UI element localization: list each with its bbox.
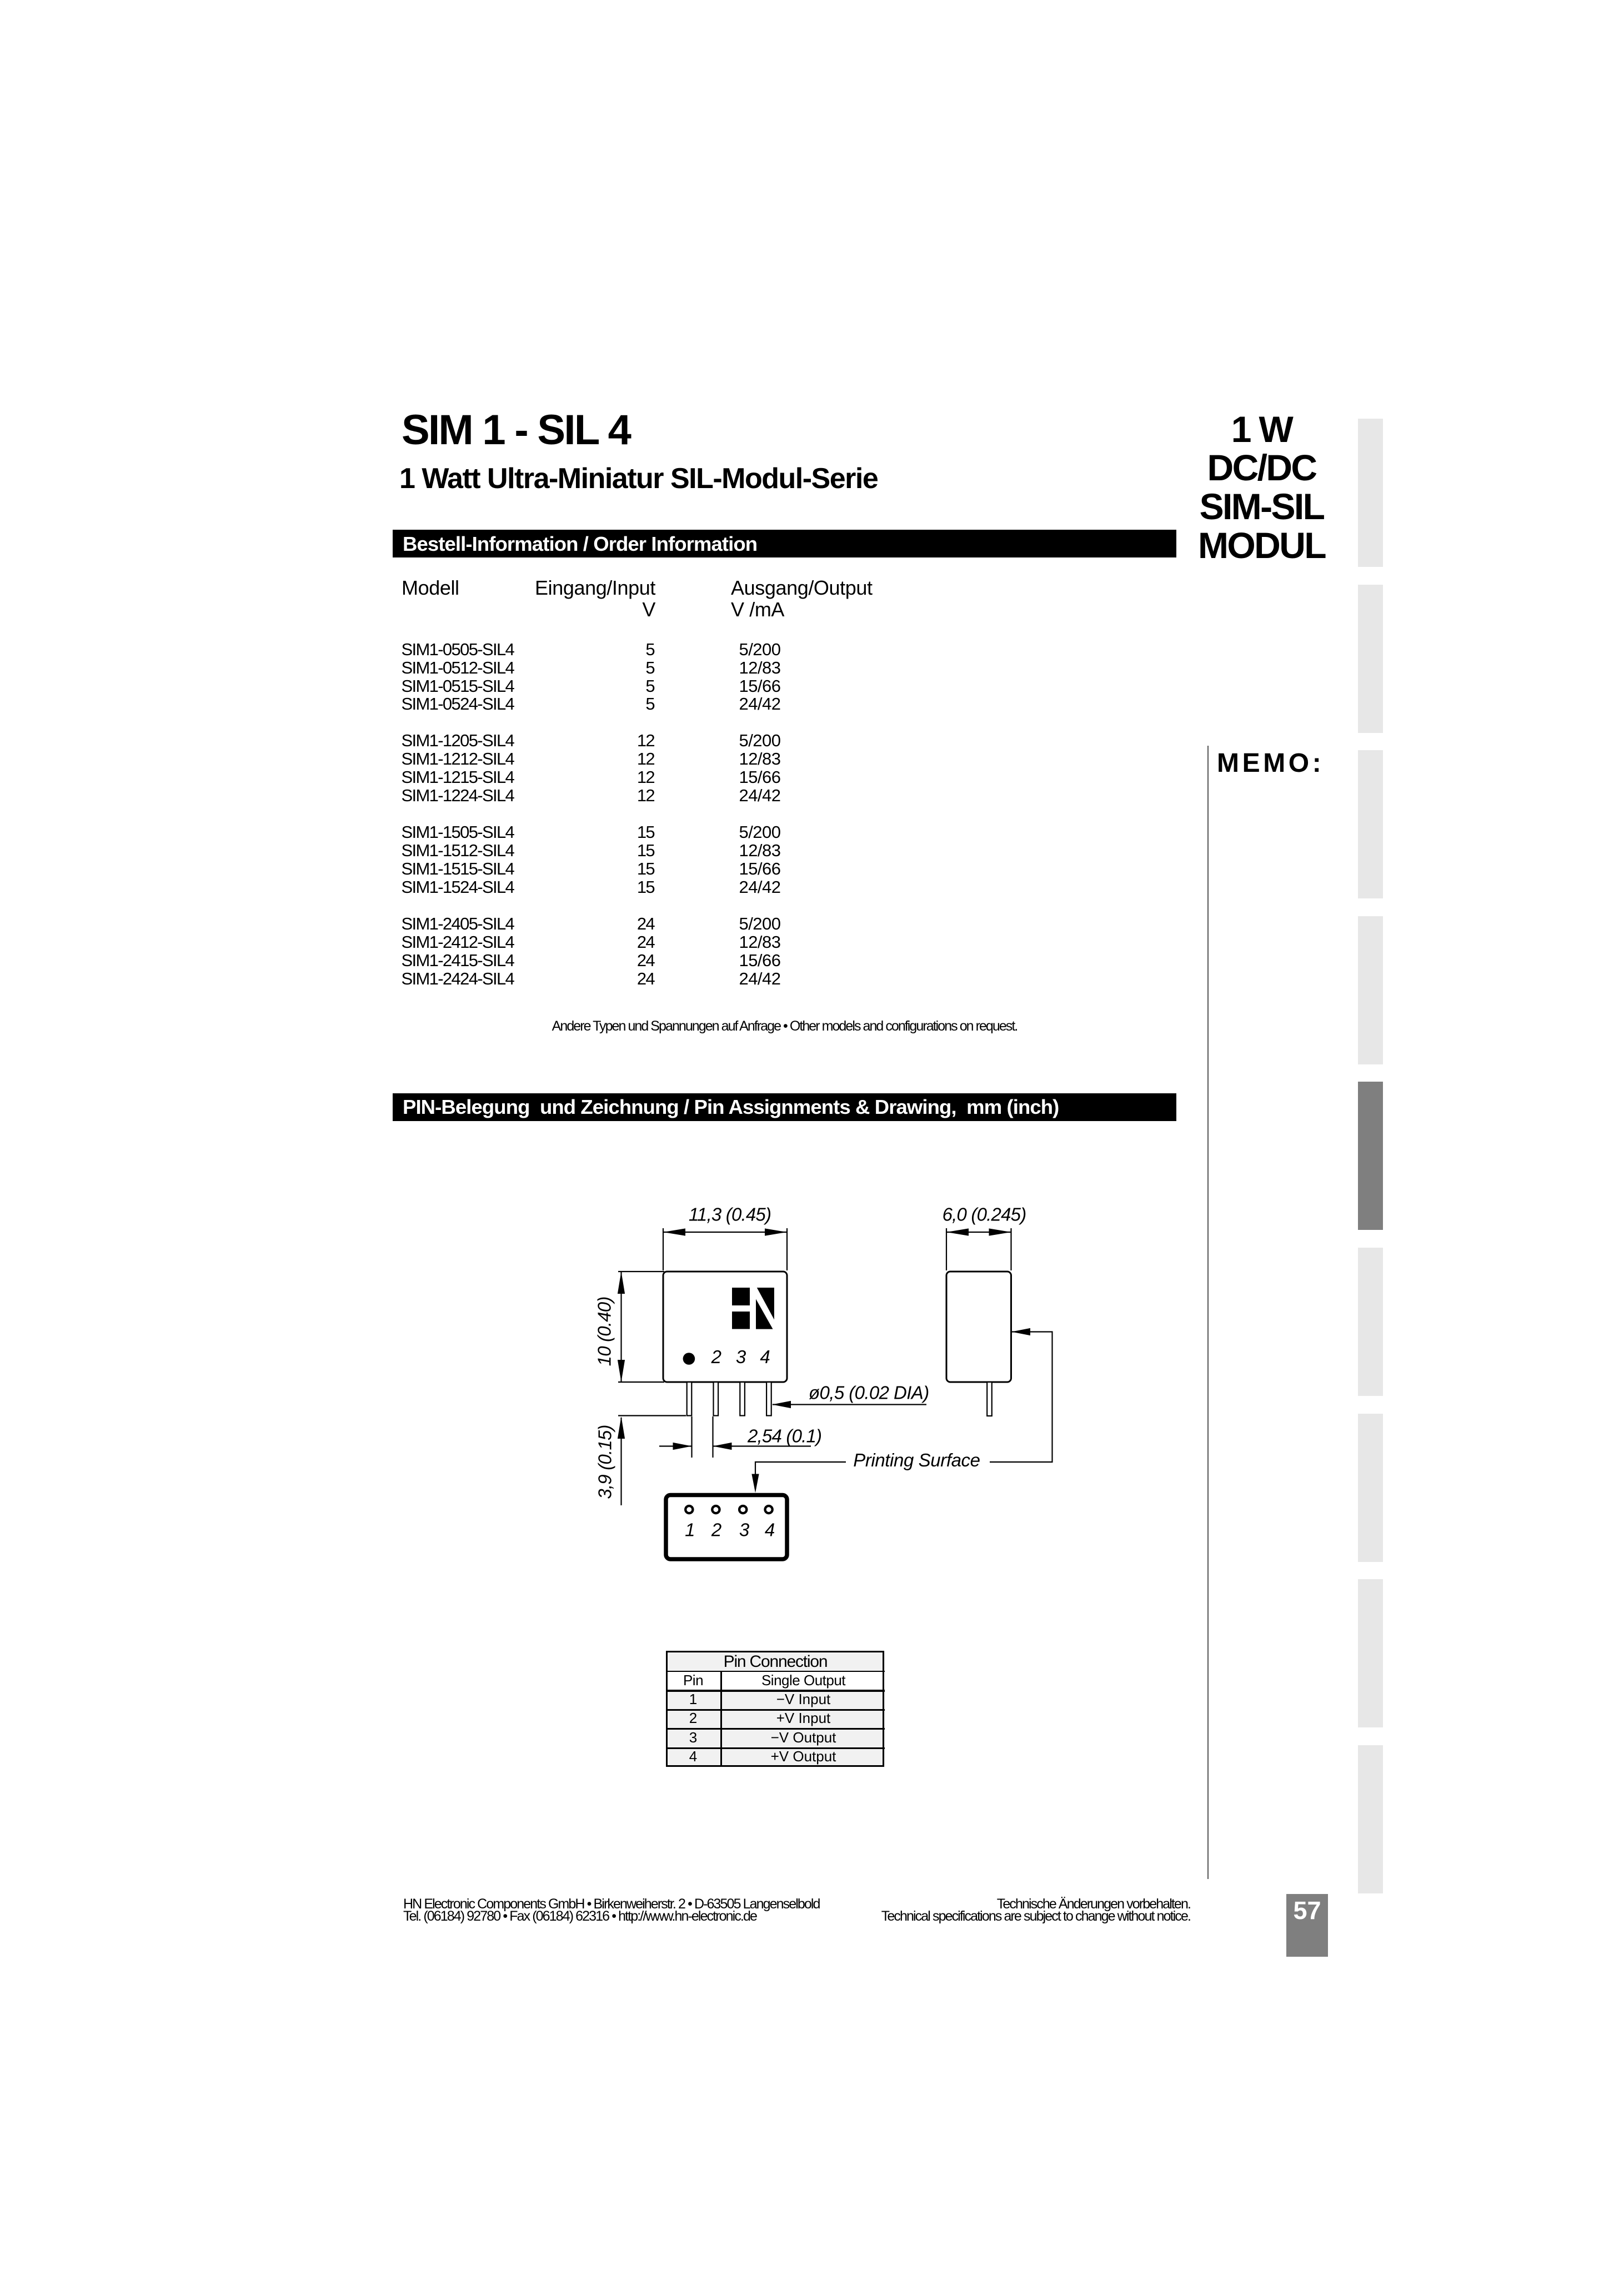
svg-text:3: 3 — [739, 1520, 750, 1540]
svg-text:2,54 (0.1): 2,54 (0.1) — [747, 1426, 821, 1446]
svg-text:4: 4 — [760, 1347, 770, 1367]
svg-text:3: 3 — [736, 1347, 746, 1367]
svg-text:1: 1 — [685, 1520, 695, 1540]
svg-text:10 (0.40): 10 (0.40) — [594, 1297, 615, 1366]
svg-text:ø0,5 (0.02 DIA): ø0,5 (0.02 DIA) — [809, 1383, 929, 1403]
svg-text:Printing Surface: Printing Surface — [853, 1450, 980, 1470]
svg-text:2: 2 — [711, 1347, 721, 1367]
svg-text:3,9 (0.15): 3,9 (0.15) — [595, 1425, 615, 1499]
svg-text:2: 2 — [711, 1520, 721, 1540]
svg-text:6,0 (0.245): 6,0 (0.245) — [943, 1204, 1026, 1224]
svg-text:4: 4 — [765, 1520, 775, 1540]
svg-text:11,3 (0.45): 11,3 (0.45) — [689, 1204, 771, 1224]
